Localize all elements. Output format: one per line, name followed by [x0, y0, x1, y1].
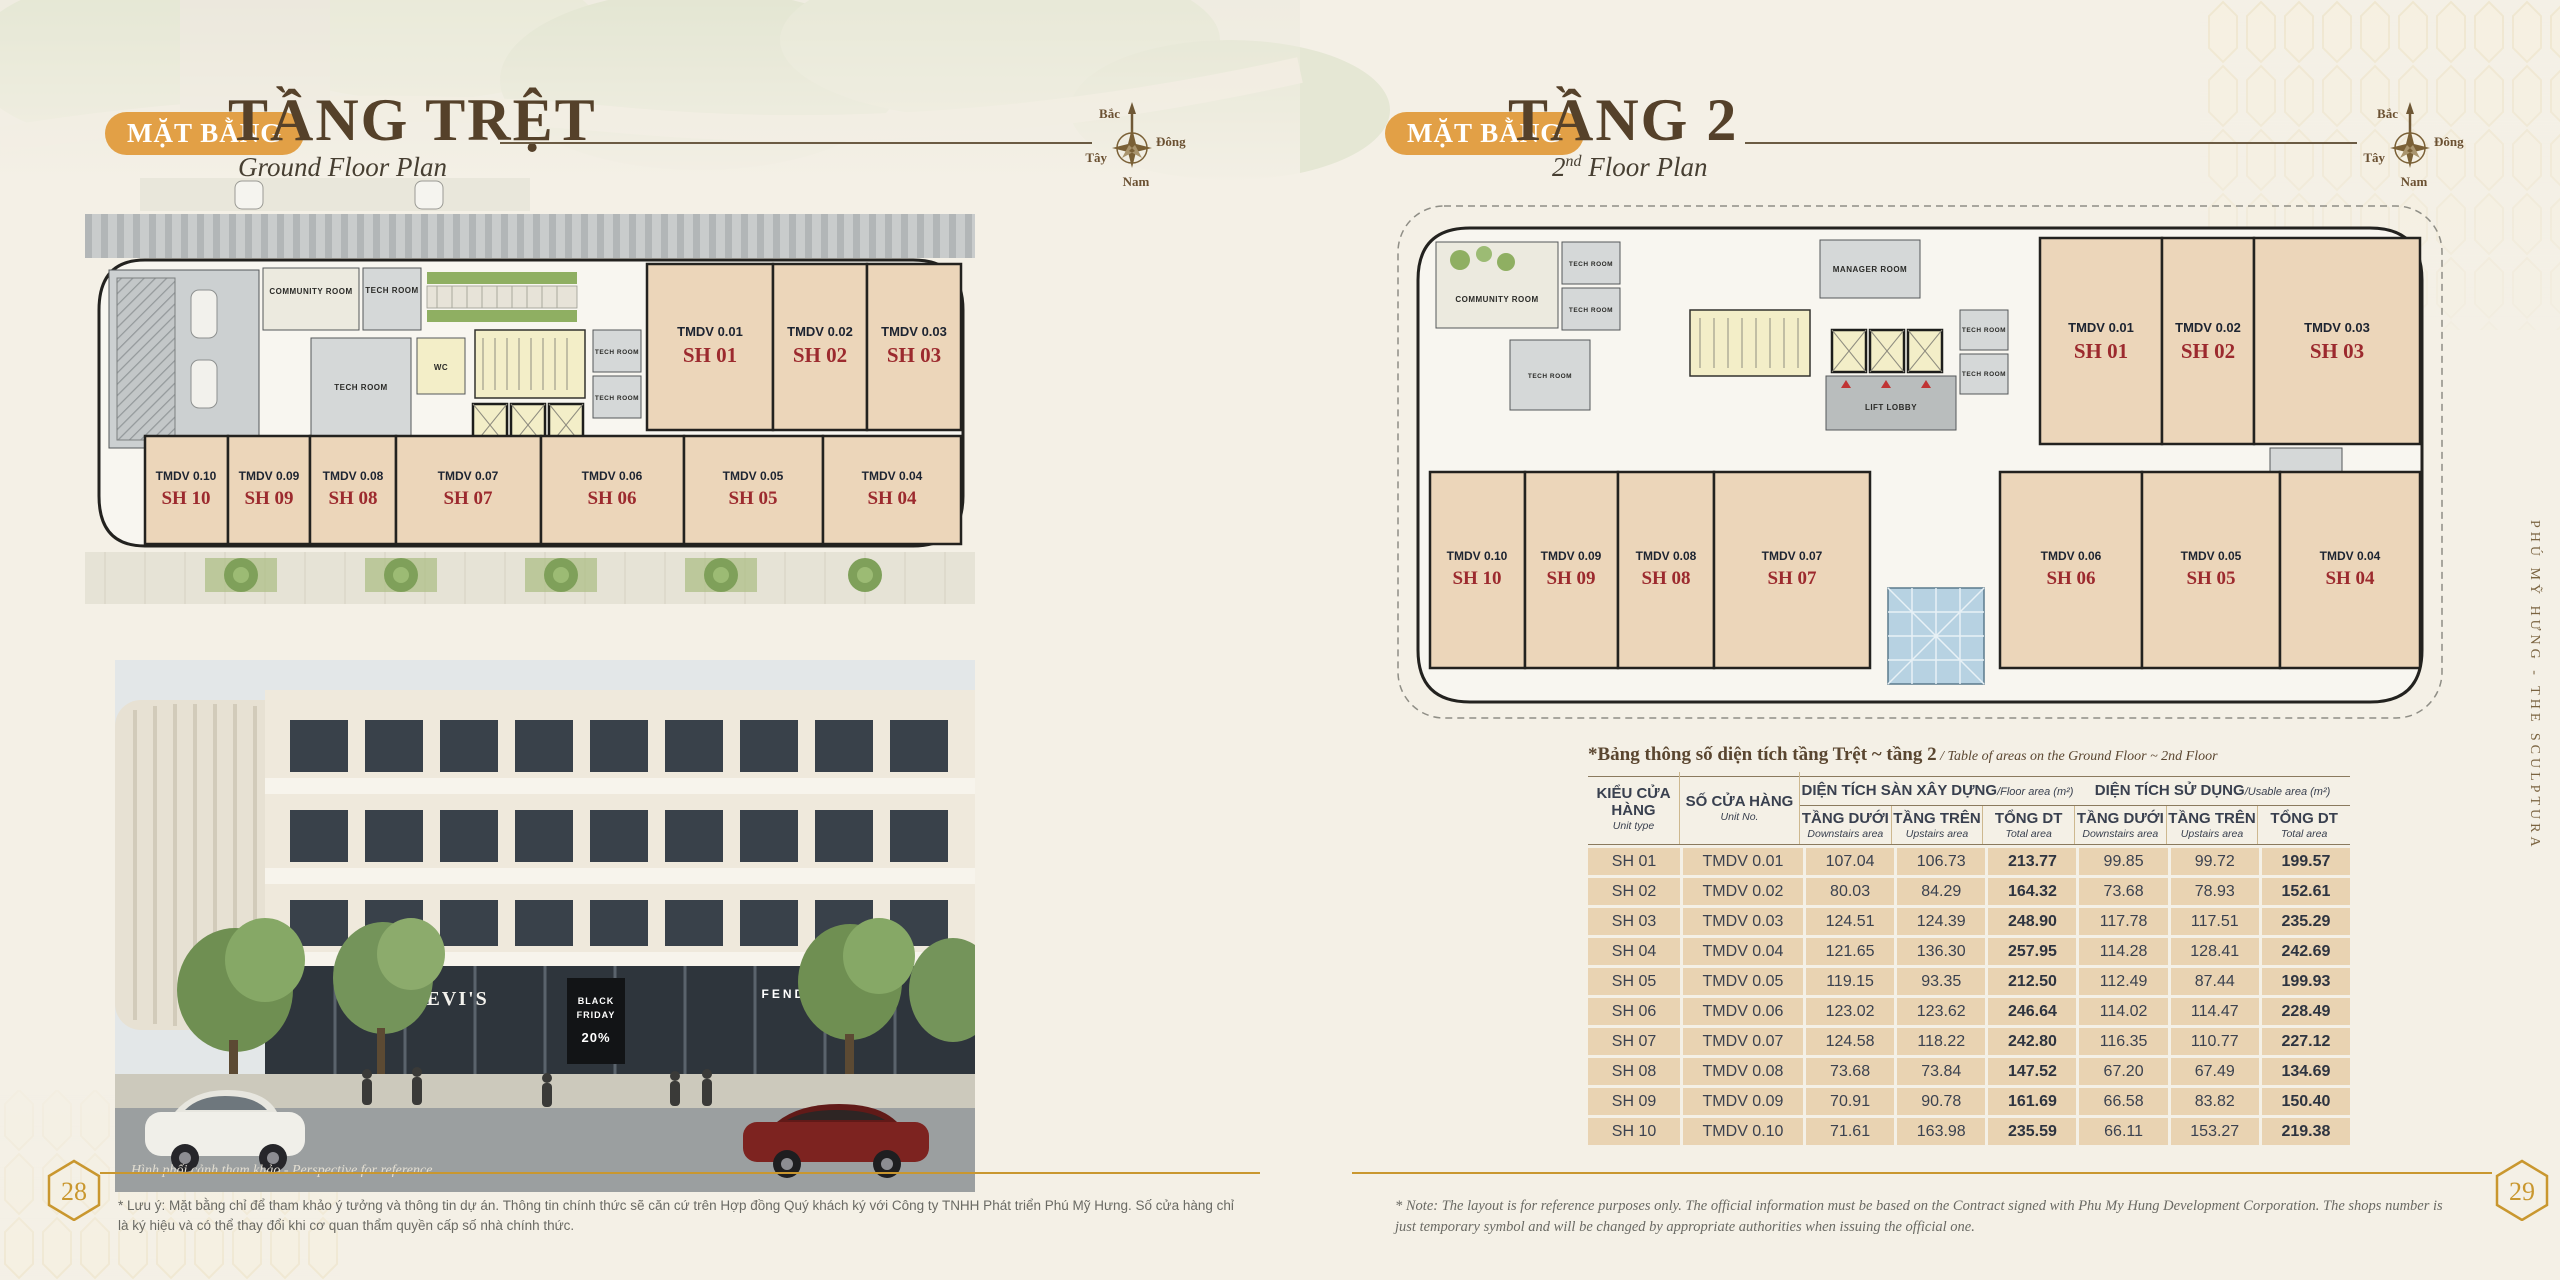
room-label-tech: TECH ROOM: [1962, 327, 2006, 334]
room-label-tech: TECH ROOM: [1528, 373, 1572, 380]
unit-label-no: TMDV 0.04: [2320, 549, 2381, 563]
table-cell: TMDV 0.07: [1683, 1028, 1803, 1055]
table-cell: SH 08: [1588, 1058, 1680, 1085]
compass-east-label: Đông: [1156, 134, 1186, 149]
unit-label-no: TMDV 0.05: [723, 469, 784, 483]
room-label-tech: TECH ROOM: [1962, 371, 2006, 378]
unit-label-sh: SH 09: [244, 488, 293, 509]
unit-label-no: TMDV 0.05: [2181, 549, 2242, 563]
compass-west-label: Tây: [1085, 150, 1107, 165]
unit-label-sh: SH 08: [1641, 568, 1690, 589]
table-cell: 99.85: [2079, 848, 2167, 875]
brochure-spread: MẶT BẰNG TẦNG TRỆT Ground Floor Plan Bắc…: [0, 0, 2560, 1280]
unit-label-no: TMDV 0.02: [787, 324, 853, 339]
table-cell: SH 04: [1588, 938, 1680, 965]
footnote-right: * Note: The layout is for reference purp…: [1395, 1196, 2450, 1238]
ground-units-bottom: TMDV 0.10 SH 10 TMDV 0.09 SH 09 TMDV 0.0…: [145, 436, 961, 544]
left-footer-rule: [100, 1172, 1260, 1174]
table-cell: 99.72: [2171, 848, 2259, 875]
unit-label-sh: SH 02: [2181, 339, 2235, 363]
table-cell: TMDV 0.03: [1683, 908, 1803, 935]
ground-floor-plan: COMMUNITY ROOM TECH ROOM TECH ROOM WC LI…: [85, 178, 975, 648]
table-cell: 242.69: [2262, 938, 2350, 965]
group-header-floor-area: DIỆN TÍCH SÀN XÂY DỰNG/Floor area (m²): [1800, 777, 2075, 806]
left-page-title: TẦNG TRỆT: [228, 90, 597, 150]
svg-text:28: 28: [61, 1177, 87, 1206]
table-cell: 128.41: [2171, 938, 2259, 965]
column-header-unit-no: SỐ CỬA HÀNGUnit No.: [1680, 772, 1800, 844]
area-table: DIỆN TÍCH SÀN XÂY DỰNG/Floor area (m²) D…: [1588, 776, 2350, 1145]
room-label-tech: TECH ROOM: [1569, 261, 1613, 268]
room-label-tech: TECH ROOM: [334, 383, 387, 392]
table-cell: 121.65: [1806, 938, 1894, 965]
svg-text:FRIDAY: FRIDAY: [577, 1010, 616, 1020]
svg-text:20%: 20%: [581, 1030, 610, 1045]
unit-label-sh: SH 04: [867, 488, 917, 509]
right-page-subtitle: 2nd Floor Plan: [1552, 152, 1708, 183]
svg-text:29: 29: [2509, 1177, 2535, 1206]
column-header-unit-type: KIỂU CỬA HÀNGUnit type: [1588, 772, 1680, 844]
second-units-bottom-left: TMDV 0.10 SH 10 TMDV 0.09 SH 09 TMDV 0.0…: [1430, 472, 1870, 668]
unit-label-no: TMDV 0.06: [2041, 549, 2102, 563]
unit-label-sh: SH 07: [1767, 568, 1817, 589]
table-row: SH 05TMDV 0.05119.1593.35212.50112.4987.…: [1588, 968, 2350, 995]
table-cell: 123.02: [1806, 998, 1894, 1025]
room-label-community: COMMUNITY ROOM: [269, 287, 352, 296]
unit-label-no: TMDV 0.10: [1447, 549, 1508, 563]
table-cell: 93.35: [1897, 968, 1985, 995]
table-cell: 78.93: [2171, 878, 2259, 905]
table-cell: 164.32: [1988, 878, 2076, 905]
unit-label-sh: SH 01: [683, 343, 737, 367]
unit-label-no: TMDV 0.06: [582, 469, 643, 483]
unit-label-no: TMDV 0.01: [2068, 320, 2134, 335]
table-cell: 90.78: [1897, 1088, 1985, 1115]
table-cell: 152.61: [2262, 878, 2350, 905]
group-header-usable-area: DIỆN TÍCH SỬ DỤNG/Usable area (m²): [2075, 777, 2350, 806]
unit-label-sh: SH 05: [2186, 568, 2235, 589]
table-cell: 67.49: [2171, 1058, 2259, 1085]
table-cell: 199.93: [2262, 968, 2350, 995]
unit-label-sh: SH 04: [2325, 568, 2375, 589]
table-cell: 134.69: [2262, 1058, 2350, 1085]
table-cell: 163.98: [1897, 1118, 1985, 1145]
table-cell: 73.68: [2079, 878, 2167, 905]
table-cell: 117.51: [2171, 908, 2259, 935]
ground-units-top: TMDV 0.01 SH 01 TMDV 0.02 SH 02 TMDV 0.0…: [647, 264, 961, 430]
unit-label-no: TMDV 0.01: [677, 324, 743, 339]
footnote-left: * Lưu ý: Mặt bằng chỉ để tham khảo ý tưở…: [118, 1196, 1248, 1235]
table-cell: 66.11: [2079, 1118, 2167, 1145]
table-cell: 150.40: [2262, 1088, 2350, 1115]
table-cell: TMDV 0.08: [1683, 1058, 1803, 1085]
table-cell: 66.58: [2079, 1088, 2167, 1115]
compass-south-label: Nam: [1123, 174, 1150, 189]
table-cell: 114.47: [2171, 998, 2259, 1025]
room-label-lift-lobby: LIFT LOBBY: [1865, 403, 1917, 412]
column-header-upstairs-2: TẦNG TRÊNUpstairs area: [2167, 806, 2259, 844]
table-cell: 242.80: [1988, 1028, 2076, 1055]
table-cell: 71.61: [1806, 1118, 1894, 1145]
table-cell: 161.69: [1988, 1088, 2076, 1115]
table-cell: 227.12: [2262, 1028, 2350, 1055]
room-label-tech: TECH ROOM: [595, 349, 639, 356]
table-cell: 73.68: [1806, 1058, 1894, 1085]
area-table-body: SH 01TMDV 0.01107.04106.73213.7799.8599.…: [1588, 848, 2350, 1145]
table-cell: SH 02: [1588, 878, 1680, 905]
table-row: SH 04TMDV 0.04121.65136.30257.95114.2812…: [1588, 938, 2350, 965]
table-row: SH 09TMDV 0.0970.9190.78161.6966.5883.82…: [1588, 1088, 2350, 1115]
table-cell: 228.49: [2262, 998, 2350, 1025]
table-cell: 213.77: [1988, 848, 2076, 875]
table-cell: TMDV 0.09: [1683, 1088, 1803, 1115]
page-number-right: 29: [2494, 1159, 2550, 1221]
unit-label-no: TMDV 0.09: [1541, 549, 1602, 563]
unit-label-sh: SH 07: [443, 488, 493, 509]
table-row: SH 02TMDV 0.0280.0384.29164.3273.6878.93…: [1588, 878, 2350, 905]
table-cell: 147.52: [1988, 1058, 2076, 1085]
column-header-total-1: TỔNG DTTotal area: [1983, 806, 2075, 844]
table-cell: 123.62: [1897, 998, 1985, 1025]
unit-label-sh: SH 09: [1546, 568, 1595, 589]
compass-north-label: Bắc: [2377, 106, 2398, 121]
second-units-bottom-right: TMDV 0.06 SH 06 TMDV 0.05 SH 05 TMDV 0.0…: [2000, 472, 2420, 668]
table-cell: 67.20: [2079, 1058, 2167, 1085]
table-cell: 136.30: [1897, 938, 1985, 965]
table-cell: 235.29: [2262, 908, 2350, 935]
unit-label-no: TMDV 0.07: [438, 469, 499, 483]
table-cell: SH 07: [1588, 1028, 1680, 1055]
unit-label-sh: SH 10: [161, 488, 210, 509]
table-cell: SH 05: [1588, 968, 1680, 995]
table-cell: 212.50: [1988, 968, 2076, 995]
photo-caption: Hình phối cảnh tham khảo - Perspective f…: [130, 1163, 432, 1178]
compass-north-label: Bắc: [1099, 106, 1120, 121]
unit-label-sh: SH 06: [587, 488, 636, 509]
second-floor-plan: COMMUNITY ROOM TECH ROOM TECH ROOM TECH …: [1390, 180, 2450, 740]
table-cell: 116.35: [2079, 1028, 2167, 1055]
right-title-rule: [1745, 142, 2357, 144]
table-cell: TMDV 0.02: [1683, 878, 1803, 905]
unit-label-no: TMDV 0.08: [1636, 549, 1697, 563]
room-label-wc: WC: [434, 363, 448, 372]
left-title-rule: [500, 142, 1092, 144]
column-header-total-2: TỔNG DTTotal area: [2258, 806, 2350, 844]
table-cell: 87.44: [2171, 968, 2259, 995]
table-cell: 114.28: [2079, 938, 2167, 965]
table-cell: 117.78: [2079, 908, 2167, 935]
room-label-tech: TECH ROOM: [365, 286, 418, 295]
unit-label-sh: SH 02: [793, 343, 847, 367]
table-cell: 84.29: [1897, 878, 1985, 905]
table-cell: 124.58: [1806, 1028, 1894, 1055]
table-row: SH 10TMDV 0.1071.61163.98235.5966.11153.…: [1588, 1118, 2350, 1145]
table-cell: 112.49: [2079, 968, 2167, 995]
table-cell: 119.15: [1806, 968, 1894, 995]
compass-left: Bắc Đông Tây Nam: [1062, 96, 1202, 206]
table-cell: TMDV 0.06: [1683, 998, 1803, 1025]
unit-label-no: TMDV 0.03: [2304, 320, 2370, 335]
area-table-section: *Bảng thông số diện tích tầng Trệt ~ tần…: [1588, 744, 2350, 1148]
svg-text:BLACK: BLACK: [578, 996, 615, 1006]
table-cell: 235.59: [1988, 1118, 2076, 1145]
table-cell: SH 10: [1588, 1118, 1680, 1145]
table-cell: 124.39: [1897, 908, 1985, 935]
unit-label-sh: SH 03: [887, 343, 941, 367]
table-cell: 153.27: [2171, 1118, 2259, 1145]
table-cell: 118.22: [1897, 1028, 1985, 1055]
table-row: SH 06TMDV 0.06123.02123.62246.64114.0211…: [1588, 998, 2350, 1025]
unit-label-no: TMDV 0.07: [1762, 549, 1823, 563]
page-number-left: 28: [46, 1159, 102, 1221]
table-cell: 73.84: [1897, 1058, 1985, 1085]
column-header-downstairs-2: TẦNG DƯỚIDownstairs area: [2075, 806, 2167, 844]
unit-label-sh: SH 10: [1452, 568, 1501, 589]
room-label-manager: MANAGER ROOM: [1833, 265, 1907, 274]
unit-label-no: TMDV 0.09: [239, 469, 300, 483]
second-units-top: TMDV 0.01 SH 01 TMDV 0.02 SH 02 TMDV 0.0…: [2040, 238, 2420, 444]
unit-label-sh: SH 03: [2310, 339, 2364, 363]
table-cell: SH 09: [1588, 1088, 1680, 1115]
right-footer-rule: [1352, 1172, 2492, 1174]
unit-label-sh: SH 05: [728, 488, 777, 509]
table-cell: TMDV 0.10: [1683, 1118, 1803, 1145]
side-brand-text: PHÚ MỸ HƯNG - THE SCULPTURA: [2526, 520, 2542, 851]
table-cell: 248.90: [1988, 908, 2076, 935]
column-header-upstairs-1: TẦNG TRÊNUpstairs area: [1892, 806, 1984, 844]
table-cell: 106.73: [1897, 848, 1985, 875]
column-header-downstairs-1: TẦNG DƯỚIDownstairs area: [1800, 806, 1892, 844]
unit-label-no: TMDV 0.10: [156, 469, 217, 483]
table-cell: 257.95: [1988, 938, 2076, 965]
table-cell: SH 01: [1588, 848, 1680, 875]
room-label-tech: TECH ROOM: [595, 395, 639, 402]
unit-label-no: TMDV 0.04: [862, 469, 923, 483]
unit-label-sh: SH 08: [328, 488, 377, 509]
unit-label-no: TMDV 0.08: [323, 469, 384, 483]
room-label-community: COMMUNITY ROOM: [1455, 295, 1538, 304]
table-cell: 219.38: [2262, 1118, 2350, 1145]
table-row: SH 01TMDV 0.01107.04106.73213.7799.8599.…: [1588, 848, 2350, 875]
table-cell: 199.57: [2262, 848, 2350, 875]
compass-east-label: Đông: [2434, 134, 2464, 149]
table-cell: 110.77: [2171, 1028, 2259, 1055]
table-cell: 83.82: [2171, 1088, 2259, 1115]
table-cell: TMDV 0.05: [1683, 968, 1803, 995]
table-cell: 114.02: [2079, 998, 2167, 1025]
table-row: SH 03TMDV 0.03124.51124.39248.90117.7811…: [1588, 908, 2350, 935]
table-cell: 70.91: [1806, 1088, 1894, 1115]
table-cell: 246.64: [1988, 998, 2076, 1025]
skylight-canopy: [1888, 588, 1984, 684]
table-cell: SH 06: [1588, 998, 1680, 1025]
table-cell: 124.51: [1806, 908, 1894, 935]
table-cell: SH 03: [1588, 908, 1680, 935]
table-cell: TMDV 0.04: [1683, 938, 1803, 965]
right-page-title: TẦNG 2: [1508, 90, 1738, 150]
black-friday-poster: BLACK FRIDAY 20%: [567, 978, 625, 1064]
unit-label-no: TMDV 0.02: [2175, 320, 2241, 335]
unit-label-sh: SH 06: [2046, 568, 2095, 589]
unit-label-no: TMDV 0.03: [881, 324, 947, 339]
table-cell: TMDV 0.01: [1683, 848, 1803, 875]
room-label-tech: TECH ROOM: [1569, 307, 1613, 314]
table-cell: 80.03: [1806, 878, 1894, 905]
table-row: SH 07TMDV 0.07124.58118.22242.80116.3511…: [1588, 1028, 2350, 1055]
perspective-photo: LEVI'S BLACK FRIDAY 20% FENDI: [115, 660, 975, 1192]
compass-west-label: Tây: [2363, 150, 2385, 165]
table-subheader-row: KIỂU CỬA HÀNGUnit type SỐ CỬA HÀNGUnit N…: [1588, 806, 2350, 845]
unit-label-sh: SH 01: [2074, 339, 2128, 363]
table-caption: *Bảng thông số diện tích tầng Trệt ~ tần…: [1588, 744, 2350, 766]
table-row: SH 08TMDV 0.0873.6873.84147.5267.2067.49…: [1588, 1058, 2350, 1085]
table-cell: 107.04: [1806, 848, 1894, 875]
